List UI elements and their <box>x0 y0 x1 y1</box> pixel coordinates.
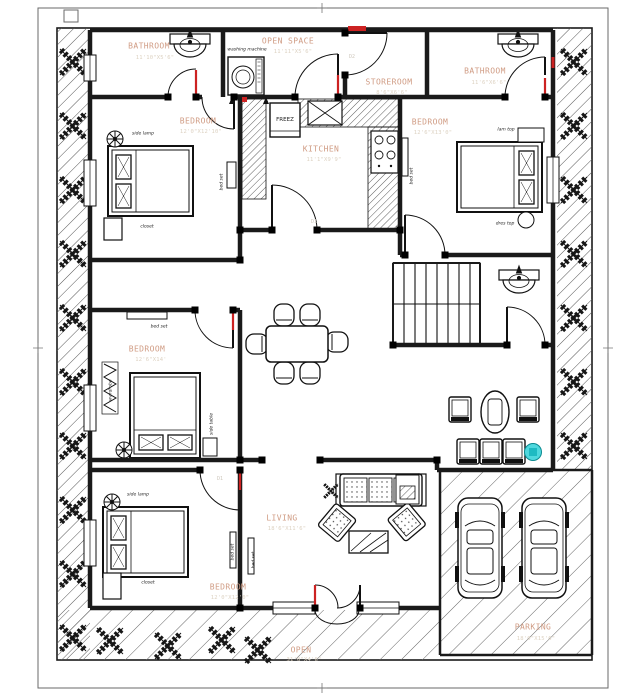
door-tag-kitchen: D1 <box>311 219 317 225</box>
labels-layer: BATHROOM 11'10"X5'6" OPEN SPACE 11'11"X5… <box>0 0 618 694</box>
room-dim-bedroom-tr: 12'6"X13'0" <box>414 130 453 136</box>
ann-dres-top: dres top <box>496 222 515 227</box>
ann-bed-set-bl1: bed set <box>231 544 236 561</box>
room-label-bedroom-bl: BEDROOM <box>210 583 247 592</box>
door-tag-bedroom-bl: D1 <box>217 476 223 482</box>
ann-wardrobe: wardrobe <box>109 379 114 400</box>
room-dim-bathroom-tl: 11'10"X5'6" <box>136 55 175 61</box>
room-dim-living: 18'6"X11'6" <box>268 526 307 532</box>
room-label-open-space: OPEN SPACE <box>262 37 314 46</box>
room-label-bedroom-tl: BEDROOM <box>180 117 217 126</box>
room-label-bathroom-tl: BATHROOM <box>128 42 170 51</box>
room-dim-parking: 18'0"X15'6" <box>517 636 556 642</box>
ann-side-lamp-bl: side lamp <box>127 493 149 498</box>
ann-closet-bl: closet <box>141 581 154 586</box>
room-label-storeroom: STOREROOM <box>366 78 413 87</box>
room-label-bedroom-tr: BEDROOM <box>412 118 449 127</box>
room-dim-open-space: 11'11"X5'6" <box>274 49 313 55</box>
room-dim-bedroom-bl: 12'0"X12'0" <box>211 595 250 601</box>
ann-washing-machine: washing machine <box>227 48 266 53</box>
ann-bed-set-bl2: bed set <box>252 552 257 569</box>
ann-bed-set-tr: bed set <box>410 168 415 185</box>
room-dim-open-bottom: 31'0"X4'6" <box>286 657 321 663</box>
ann-side-lamp-tl: side lamp <box>132 132 154 137</box>
ann-lam-top: lam top <box>497 128 514 133</box>
room-label-bedroom-ml: BEDROOM <box>129 345 166 354</box>
ann-freez: FREEZ <box>276 117 294 123</box>
floor-plan: BATHROOM 11'10"X5'6" OPEN SPACE 11'11"X5… <box>0 0 618 694</box>
room-label-parking: PARKING <box>515 623 552 632</box>
ann-closet-tl: closet <box>140 225 153 230</box>
room-label-kitchen: KITCHEN <box>303 145 340 154</box>
ann-side-table: side table <box>210 413 215 435</box>
room-dim-kitchen: 11'1"X9'9" <box>306 157 341 163</box>
room-label-open-bottom: OPEN <box>291 646 312 655</box>
door-tag-storeroom: D2 <box>349 54 355 60</box>
room-dim-bedroom-tl: 12'0"X12'10" <box>180 129 222 135</box>
room-label-bathroom-tr: BATHROOM <box>464 67 506 76</box>
room-dim-bathroom-tr: 11'6"X6'6" <box>471 80 506 86</box>
ann-bed-set-ml: bed set <box>151 325 168 330</box>
room-dim-bedroom-ml: 12'6"X14' <box>135 357 167 363</box>
room-dim-storeroom: 8'6"X6'6" <box>376 90 408 96</box>
room-label-living: LIVING <box>266 514 297 523</box>
ann-bed-set-tl: bed set <box>220 174 225 191</box>
